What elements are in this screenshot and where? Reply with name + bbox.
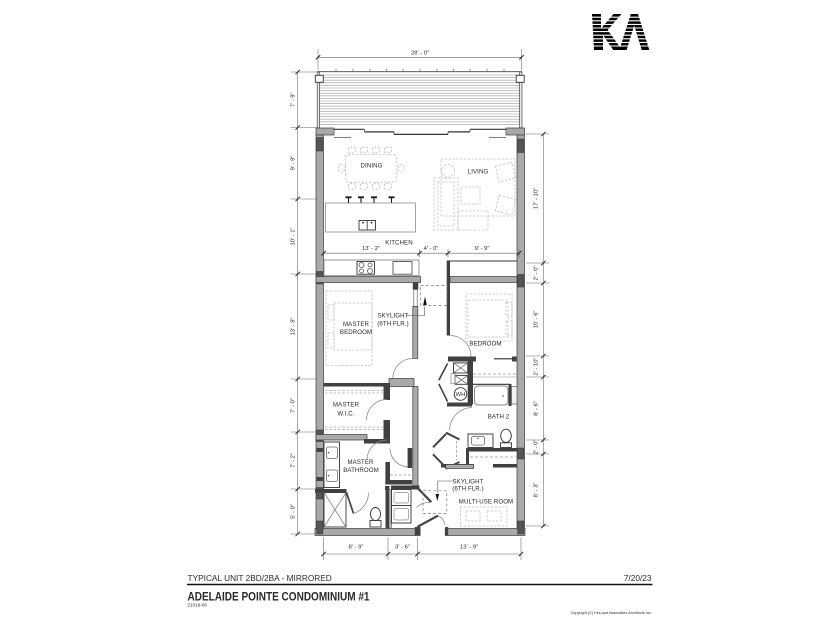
svg-text:MASTER: MASTER [343,321,369,328]
svg-text:7' - 9": 7' - 9" [291,92,297,107]
svg-text:3' - 6": 3' - 6" [395,545,410,551]
svg-text:MULTI-USE ROOM: MULTI-USE ROOM [459,499,513,506]
svg-text:4' - 0": 4' - 0" [424,246,439,252]
svg-text:8' - 6": 8' - 6" [534,401,540,416]
svg-text:LIVING: LIVING [468,169,489,176]
svg-text:28' - 0": 28' - 0" [411,51,429,57]
svg-text:MASTER: MASTER [348,459,374,466]
svg-text:MASTER: MASTER [333,402,359,409]
svg-text:9' - 9": 9' - 9" [291,156,297,171]
svg-text:BATH 2: BATH 2 [488,414,510,421]
svg-text:13' - 8": 13' - 8" [291,318,297,336]
svg-text:7' - 2": 7' - 2" [291,453,297,468]
svg-text:8' - 3": 8' - 3" [534,483,540,498]
svg-text:17' - 10": 17' - 10" [534,188,540,209]
svg-text:BATHROOM: BATHROOM [343,467,379,474]
svg-text:10' - 1": 10' - 1" [291,228,297,246]
svg-text:13' - 9": 13' - 9" [460,545,478,551]
svg-text:5' - 0": 5' - 0" [291,504,297,519]
svg-text:KITCHEN: KITCHEN [385,240,412,247]
svg-text:2' - 0": 2' - 0" [534,440,540,455]
svg-text:2' - 0": 2' - 0" [534,266,540,281]
svg-text:(6TH FLR.): (6TH FLR.) [452,486,483,493]
svg-text:21016-00: 21016-00 [188,603,208,608]
svg-text:BEDROOM: BEDROOM [340,329,372,336]
svg-text:ADELAIDE POINTE CONDOMINIUM #1: ADELAIDE POINTE CONDOMINIUM #1 [188,590,370,604]
svg-text:7' - 0": 7' - 0" [291,398,297,413]
svg-text:WH: WH [456,392,466,398]
svg-text:TYPICAL UNIT 2BD/2BA - MIRRORE: TYPICAL UNIT 2BD/2BA - MIRRORED [188,573,332,583]
svg-text:8' - 9": 8' - 9" [349,545,364,551]
svg-text:Copyright (C) Kirk and Associ: Copyright (C) Kirk and Associates Archit… [571,611,652,615]
svg-text:13' - 2": 13' - 2" [362,246,380,252]
svg-text:SKYLIGHT: SKYLIGHT [378,313,409,320]
svg-text:W.I.C.: W.I.C. [337,411,354,418]
svg-text:(6TH FLR.): (6TH FLR.) [377,321,408,328]
svg-text:BEDROOM: BEDROOM [469,341,501,348]
svg-text:10' - 6": 10' - 6" [534,311,540,329]
svg-text:2' - 10": 2' - 10" [534,358,540,376]
svg-text:DINING: DINING [361,163,383,170]
svg-text:9' - 9": 9' - 9" [475,246,490,252]
svg-text:SKYLIGHT: SKYLIGHT [453,479,484,486]
svg-text:7/20/23: 7/20/23 [624,573,652,583]
